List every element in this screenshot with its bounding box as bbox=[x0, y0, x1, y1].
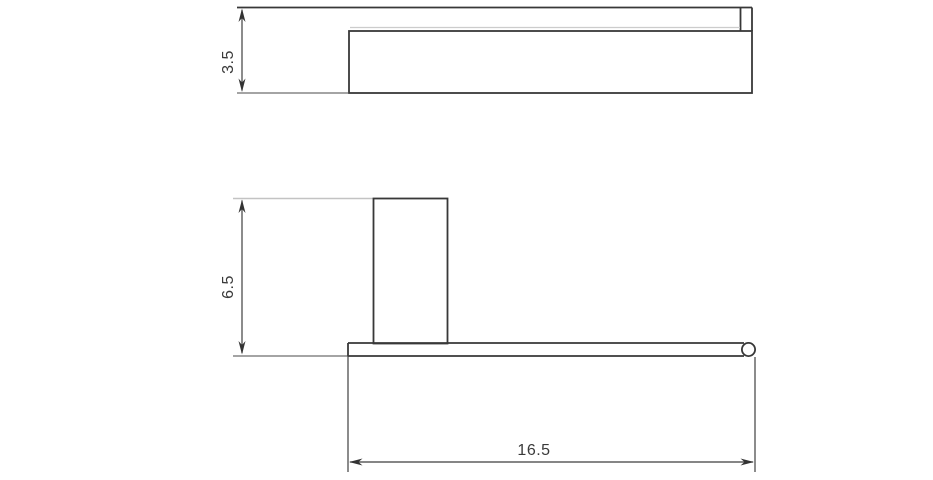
drawing-page: 3.5 6.5 bbox=[0, 0, 933, 480]
front-view-wall-post bbox=[374, 199, 448, 344]
top-view-body-rect bbox=[349, 31, 752, 93]
front-view-width-dimension: 16.5 bbox=[348, 344, 755, 472]
front-view: 6.5 16.5 bbox=[220, 199, 755, 473]
dimension-label-height: 6.5 bbox=[220, 275, 237, 299]
front-view-roll-bar bbox=[348, 343, 744, 356]
front-view-height-dimension: 6.5 bbox=[220, 200, 246, 355]
front-view-bar-end-circle bbox=[742, 343, 755, 356]
top-view: 3.5 bbox=[220, 8, 752, 94]
dimension-label-width: 16.5 bbox=[517, 442, 550, 459]
technical-drawing-canvas: 3.5 6.5 bbox=[0, 0, 933, 480]
dimension-label-depth: 3.5 bbox=[220, 50, 237, 74]
top-view-depth-dimension: 3.5 bbox=[220, 9, 246, 93]
